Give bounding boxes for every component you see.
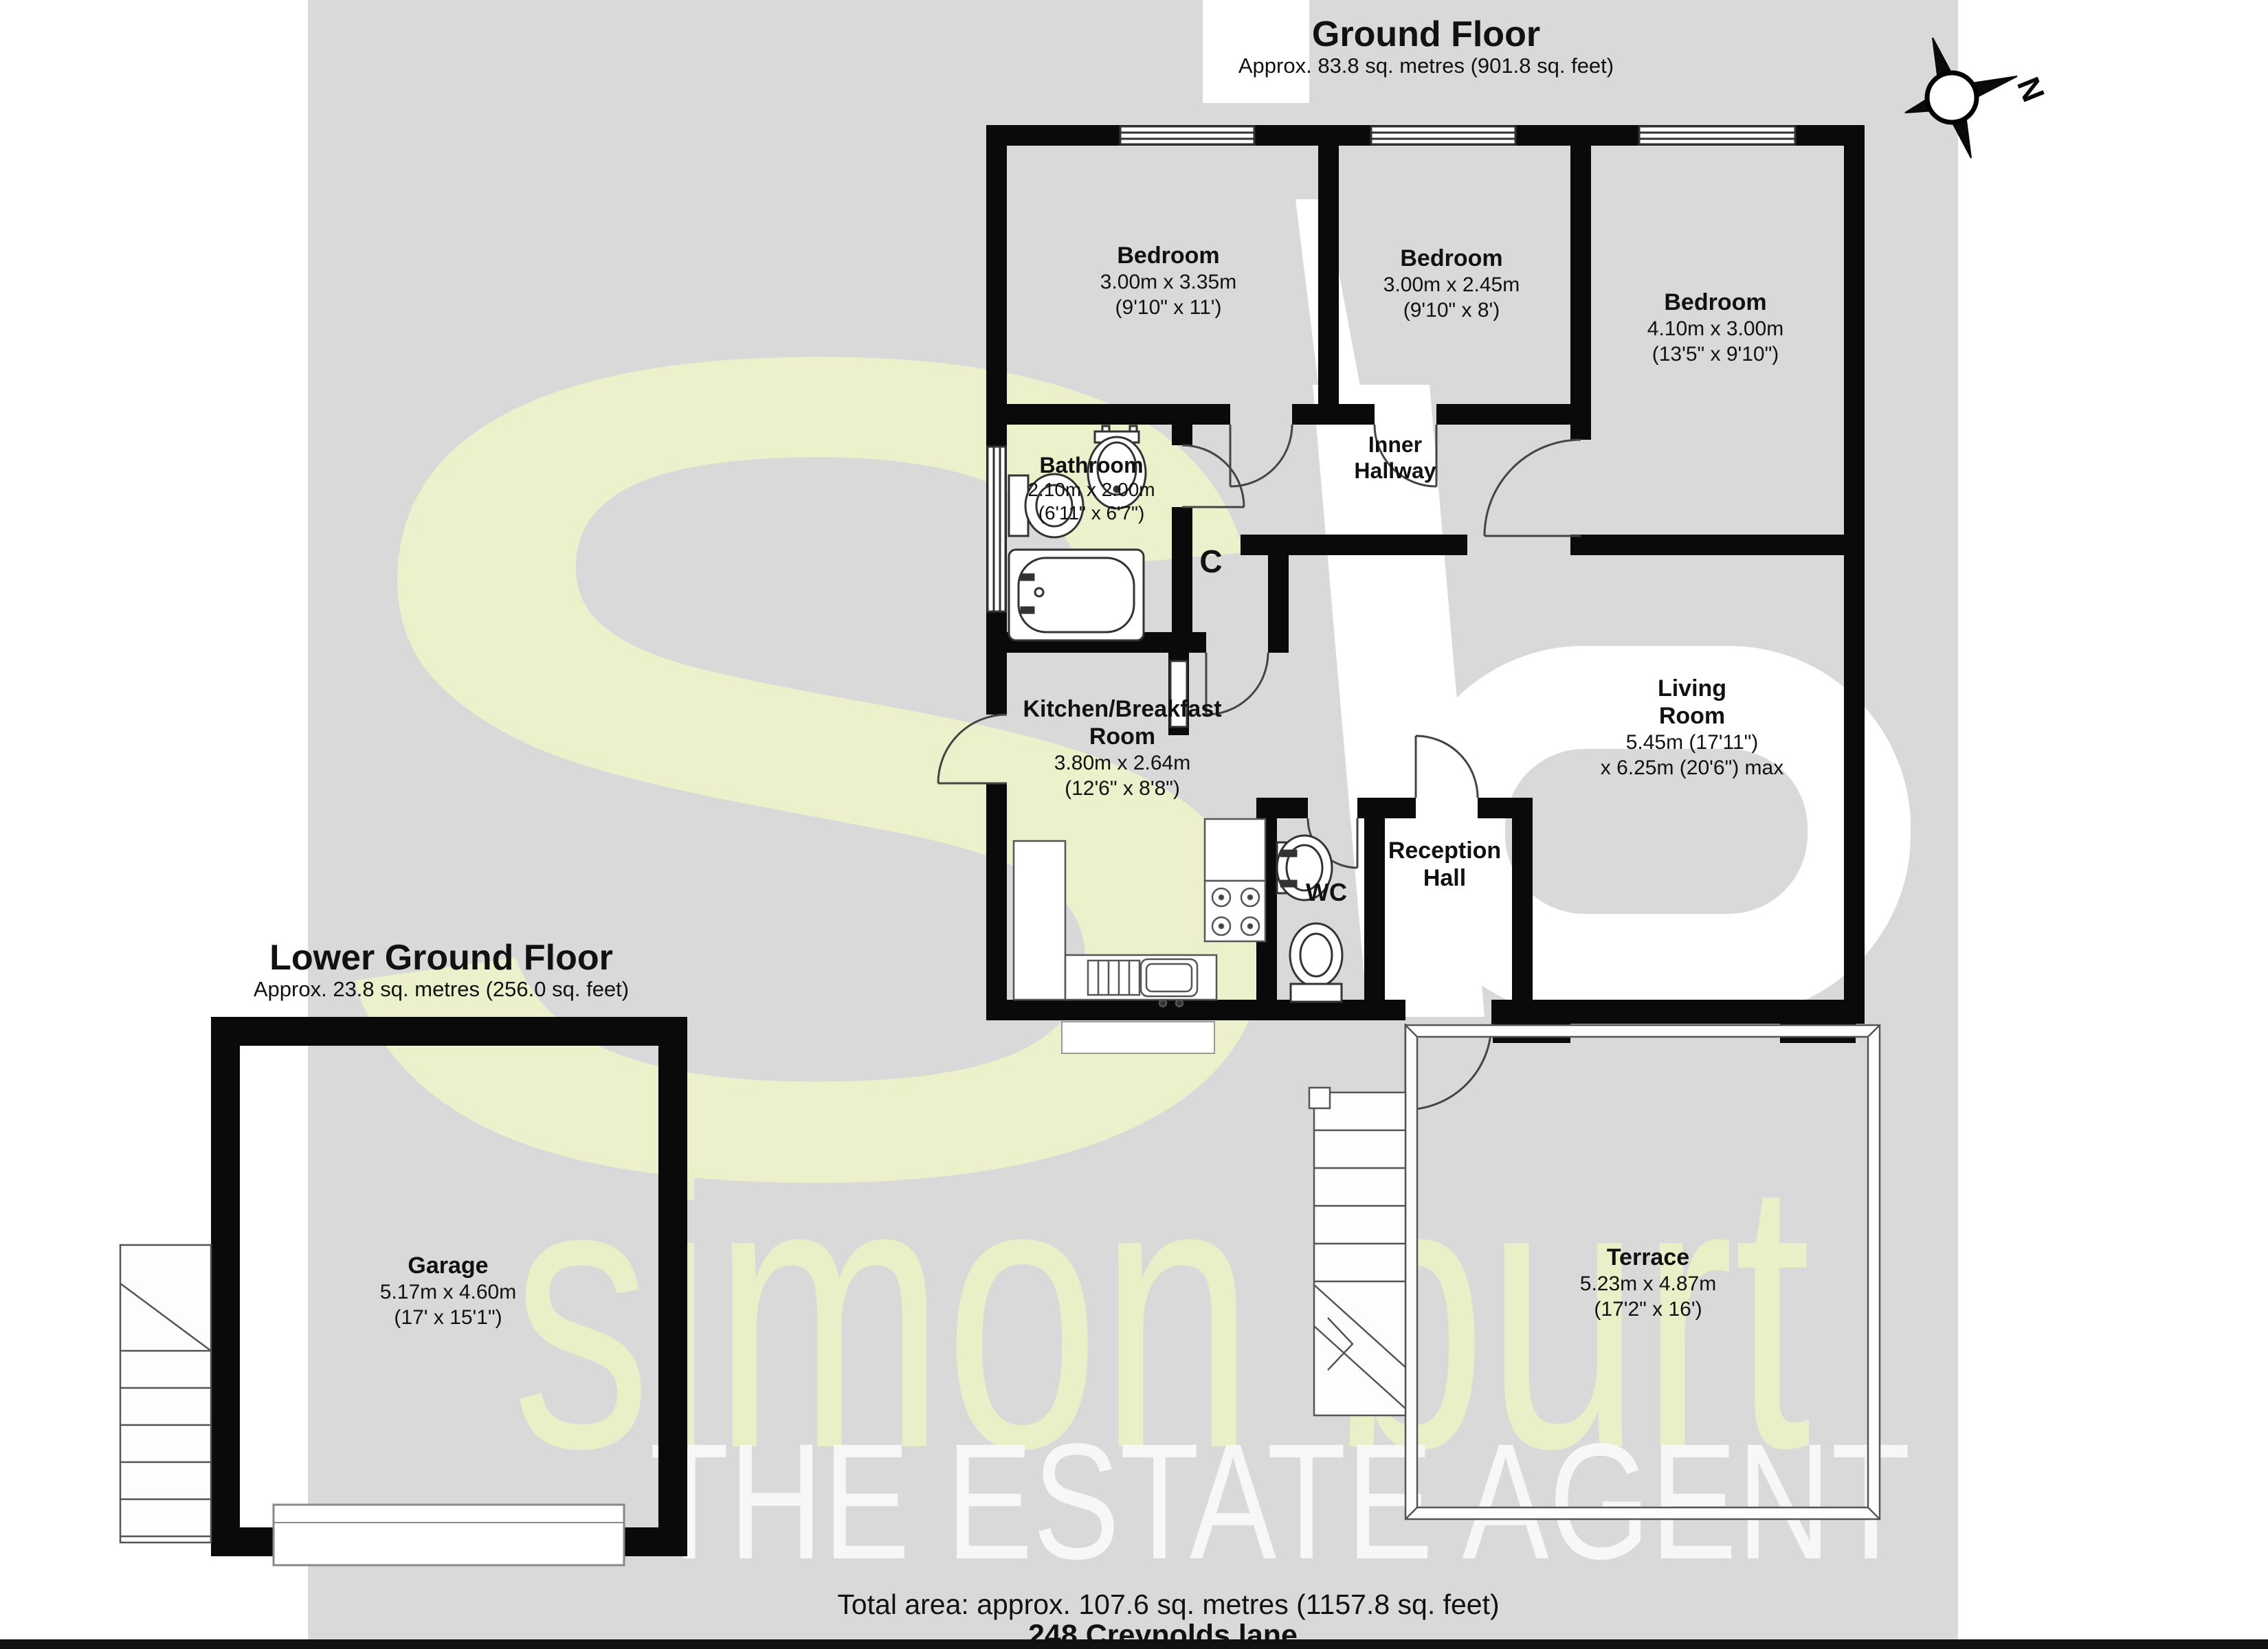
bath-icon: [1009, 550, 1144, 640]
total-area-text: Total area: approx. 107.6 sq. metres (11…: [837, 1589, 1499, 1621]
room-label-inner-hallway: Inner Hallway: [1354, 431, 1436, 484]
garage-door: [274, 1505, 624, 1565]
lower-ground-floor-title: Lower Ground Floor Approx. 23.8 sq. metr…: [254, 939, 629, 1002]
room-label-cupboard: C: [1199, 543, 1222, 580]
address-text: 248 Creynolds lane: [1028, 1619, 1298, 1649]
wc-toilet-icon: [1290, 923, 1342, 1002]
kitchen-doorstep: [1062, 1022, 1214, 1053]
watermark-tagline-text: THE ESTATE AGENT: [649, 1409, 1911, 1593]
garage-stairs-icon: [120, 1245, 211, 1543]
ground-floor-title: Ground Floor Approx. 83.8 sq. metres (90…: [1238, 15, 1614, 78]
page-title: Ground Floor: [1238, 15, 1614, 54]
room-label-garage: Garage 5.17m x 4.60m (17' x 15'1"): [380, 1252, 516, 1330]
room-label-wc: WC: [1306, 878, 1347, 907]
room-label-bathroom: Bathroom 2.10m x 2.00m (6'11" x 6'7"): [1027, 452, 1155, 525]
room-label-bedroom1: Bedroom 3.00m x 3.35m (9'10" x 11'): [1100, 242, 1236, 320]
room-label-bedroom3: Bedroom 4.10m x 3.00m (13'5" x 9'10"): [1647, 289, 1783, 367]
ground-floor-area: Approx. 83.8 sq. metres (901.8 sq. feet): [1238, 54, 1614, 78]
kitchen-counter: [1014, 841, 1065, 1000]
floorplan-page: s simon burt THE ESTATE AGENT: [0, 0, 2268, 1649]
room-label-terrace: Terrace 5.23m x 4.87m (17'2" x 16'): [1580, 1244, 1716, 1322]
room-label-reception-hall: Reception Hall: [1388, 837, 1501, 892]
room-label-bedroom2: Bedroom 3.00m x 2.45m (9'10" x 8'): [1383, 245, 1520, 323]
hob-icon: [1205, 881, 1265, 941]
lower-ground-floor-area: Approx. 23.8 sq. metres (256.0 sq. feet): [254, 977, 629, 1002]
kitchen-worktop: [1205, 819, 1265, 881]
room-label-kitchen: Kitchen/Breakfast Room 3.80m x 2.64m (12…: [1023, 695, 1221, 801]
room-label-living-room: Living Room 5.45m (17'11") x 6.25m (20'6…: [1601, 675, 1783, 781]
terrace-stairs-icon: [1309, 1088, 1405, 1415]
